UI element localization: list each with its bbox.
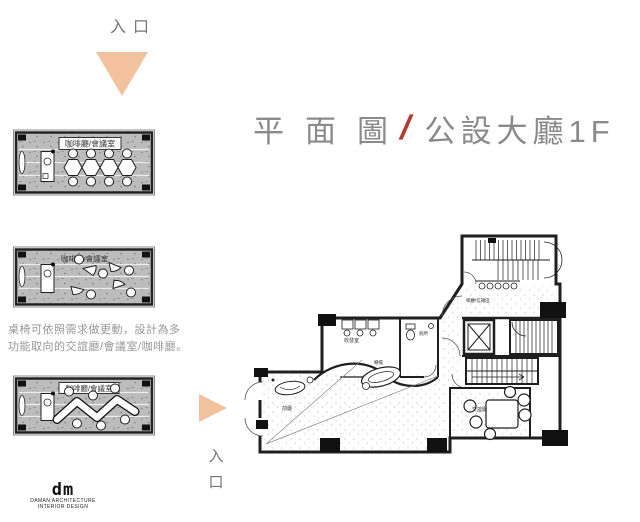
entrance-side-char-1: 入 [206, 444, 226, 470]
description-line-1: 桌椅可依照需求做更動，設計為多 [8, 322, 188, 339]
floor-plan-drawing: 梯廳/信箱區 收發室 廁所 櫃檯 前廳 交誼廳 [226, 230, 574, 464]
description-line-2: 功能取向的交誼廳/會議室/咖啡廳。 [8, 339, 188, 356]
thumbnail-plan-hex-tables: 咖啡廳/會議室 [13, 127, 155, 198]
entrance-side-label: 入 口 [206, 444, 226, 496]
plan-top-stairs [472, 238, 562, 280]
logo-line-2: INTERIOR DESIGN [20, 504, 106, 510]
thumb3-counter [41, 392, 55, 421]
thumbnail-3-drawing: 咖啡廳/會議室 [13, 375, 155, 436]
plan-elevator [464, 320, 494, 354]
slide-canvas: 入口 [0, 0, 640, 522]
thumbnail-1-drawing: 咖啡廳/會議室 [13, 127, 155, 198]
plan-label-counter: 櫃檯 [374, 359, 383, 366]
entrance-top-label: 入口 [110, 13, 156, 37]
company-logo: dm DAMAN ARCHITECTURE INTERIOR DESIGN [20, 483, 106, 510]
plan-label-mail-room: 收發室 [344, 337, 359, 344]
plan-mailroom-desks [342, 320, 379, 336]
entrance-side-char-2: 口 [206, 470, 226, 496]
page-title: 平面圖 / 公設大廳1F [253, 106, 615, 151]
description-text: 桌椅可依照需求做更動，設計為多 功能取向的交誼廳/會議室/咖啡廳。 [8, 322, 188, 356]
title-plan-text: 平面圖 [253, 106, 409, 151]
thumb2-label: 咖啡廳/會議室 [61, 254, 109, 264]
thumb1-counter [41, 150, 55, 182]
logo-mark: dm [20, 483, 106, 498]
title-lobby-text: 公設大廳1F [424, 106, 614, 151]
plan-mailboxes [476, 281, 520, 289]
entrance-arrow-down-icon [96, 52, 148, 96]
thumb1-label-box: 咖啡廳/會議室 [59, 138, 121, 150]
thumb1-label: 咖啡廳/會議室 [65, 139, 115, 149]
plan-lower-stairs [466, 358, 538, 384]
plan-mid-stairs [510, 320, 558, 354]
entrance-arrow-right-icon [199, 394, 227, 422]
plan-label-front-hall: 前廳 [282, 405, 292, 412]
plan-label-stair-hall: 梯廳/信箱區 [466, 297, 490, 304]
thumbnail-plan-lounge-chairs: 咖啡廳/會議室 [13, 246, 155, 308]
thumb2-counter [41, 263, 55, 293]
main-floor-plan: 梯廳/信箱區 收發室 廁所 櫃檯 前廳 交誼廳 [226, 230, 574, 464]
plan-label-toilet: 廁所 [419, 330, 428, 337]
thumbnail-plan-zigzag-tables: 咖啡廳/會議室 [13, 375, 155, 436]
plan-label-lounge: 交誼廳 [472, 406, 487, 413]
thumbnail-2-drawing: 咖啡廳/會議室 [13, 246, 155, 308]
